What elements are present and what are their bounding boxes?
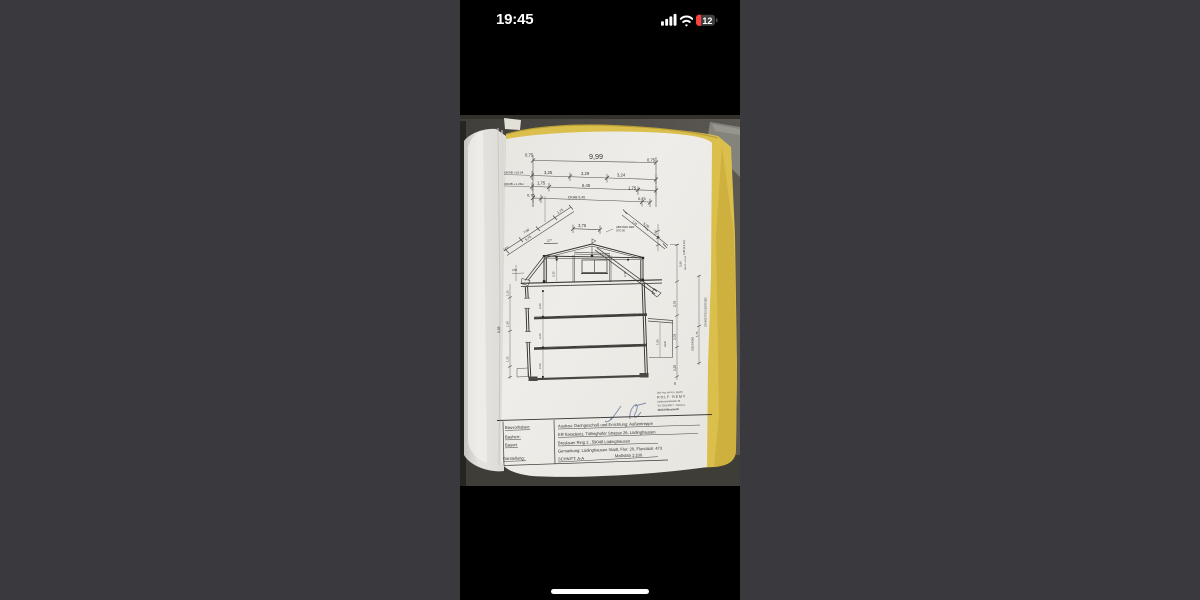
svg-text:2,26: 2,26 — [538, 363, 542, 369]
svg-text:1,26: 1,26 — [506, 290, 510, 296]
svg-text:3,29: 3,29 — [581, 171, 590, 176]
svg-text:1,75: 1,75 — [537, 181, 546, 186]
svg-text:STG 90: STG 90 — [616, 229, 625, 233]
svg-text:0,38 (2,4,10): 0,38 (2,4,10) — [682, 240, 686, 255]
svg-text:3,75: 3,75 — [578, 223, 587, 228]
svg-text:1,75: 1,75 — [628, 186, 637, 191]
svg-text:17°: 17° — [547, 239, 553, 243]
svg-text:6,45: 6,45 — [582, 183, 591, 188]
svg-text:1,90: 1,90 — [656, 339, 660, 345]
svg-text:0.75: 0.75 — [647, 158, 656, 163]
svg-text:2,25: 2,25 — [673, 365, 677, 371]
svg-text:0.75: 0.75 — [638, 196, 647, 201]
svg-text:Darstellung:: Darstellung: — [503, 455, 525, 461]
svg-text:GAR: GAR — [663, 341, 667, 347]
svg-text:1,35: 1,35 — [506, 356, 510, 362]
svg-text:3,25: 3,25 — [544, 170, 553, 175]
svg-text:12: 12 — [702, 16, 712, 26]
svg-text:Bauort: Bauort — [505, 442, 518, 447]
svg-text:2,30: 2,30 — [623, 271, 627, 277]
svg-text:GRUNDSTÜCKSGRENZE: GRUNDSTÜCKSGRENZE — [705, 297, 708, 327]
svg-text:48143 Münster/W.: 48143 Münster/W. — [657, 407, 679, 412]
svg-text:3,24: 3,24 — [617, 173, 626, 178]
svg-text:0,60: 0,60 — [655, 230, 658, 235]
svg-text:(GELÄNDE): (GELÄNDE) — [691, 337, 695, 351]
svg-text:Maßstab 1:100: Maßstab 1:100 — [615, 452, 643, 458]
svg-text:1,76: 1,76 — [695, 331, 699, 337]
svg-text:2,96: 2,96 — [679, 261, 683, 267]
svg-text:2,30: 2,30 — [552, 271, 556, 277]
svg-text:9,99: 9,99 — [589, 152, 603, 161]
svg-text:2,26: 2,26 — [538, 333, 542, 339]
svg-text:OKRB +1.26m: OKRB +1.26m — [504, 182, 524, 186]
svg-text:OK FF +10,04: OK FF +10,04 — [685, 255, 687, 270]
svg-text:0,75: 0,75 — [527, 193, 536, 198]
svg-text:DKHB 9,49: DKHB 9,49 — [568, 196, 585, 200]
svg-text:1,38: 1,38 — [506, 321, 510, 327]
svg-text:2,26: 2,26 — [538, 303, 542, 309]
svg-text:2,75: 2,75 — [673, 334, 677, 340]
svg-text:2,75: 2,75 — [673, 301, 677, 307]
svg-text:ABSTAND DER: ABSTAND DER — [616, 225, 634, 229]
svg-text:Bauherr:: Bauherr: — [505, 434, 521, 439]
svg-text:OKRB +10.04: OKRB +10.04 — [504, 171, 523, 175]
svg-text:0,50: 0,50 — [512, 268, 518, 272]
svg-text:Bauvorhaben:: Bauvorhaben: — [505, 424, 531, 430]
svg-text:0,75: 0,75 — [525, 153, 534, 158]
svg-text:8,98: 8,98 — [497, 326, 501, 333]
